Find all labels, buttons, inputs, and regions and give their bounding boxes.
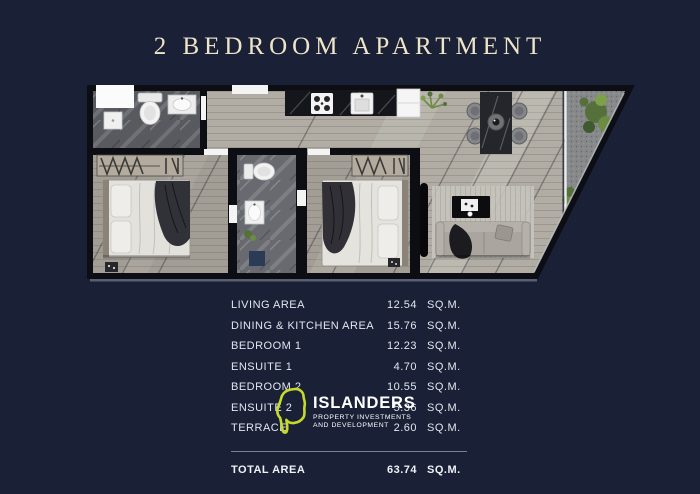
total-unit: SQ.M.: [427, 464, 467, 476]
toilet-icon: [244, 163, 275, 180]
sink-icon: [245, 201, 264, 224]
terrace: [562, 88, 630, 216]
table-row: LIVING AREA 12.54 SQ.M.: [231, 295, 467, 316]
bedroom-1-door: [204, 149, 228, 155]
total-value: 63.74: [377, 464, 417, 476]
toilet-icon: [138, 93, 162, 125]
page: 2 BEDROOM APARTMENT: [0, 0, 700, 494]
kitchen-counter: [285, 89, 420, 117]
dining-table: [480, 92, 512, 154]
area-label: ENSUITE 1: [231, 361, 377, 373]
bedside-box: [105, 262, 118, 272]
area-value: 15.76: [377, 320, 417, 332]
area-value: 12.54: [377, 299, 417, 311]
logo-text: ISLANDERS PROPERTY INVESTMENTS AND DEVEL…: [313, 386, 416, 429]
bedroom-2-door: [308, 149, 330, 155]
area-unit: SQ.M.: [427, 340, 467, 352]
area-label: DINING & KITCHEN AREA: [231, 320, 377, 332]
doors: [96, 85, 330, 223]
tv: [420, 183, 428, 257]
bedroom-2-floor: [305, 152, 412, 274]
dining-set: [421, 92, 528, 155]
sink-icon: [168, 95, 196, 114]
wardrobe-1: [97, 155, 183, 176]
logo-name: ISLANDERS: [313, 395, 416, 412]
total-row: TOTAL AREA 63.74 SQ.M.: [231, 460, 467, 480]
ensuite-1-fixtures: [104, 93, 196, 129]
hall-door: [232, 85, 268, 94]
stove-icon: [311, 93, 333, 114]
ensuite-1-door: [201, 96, 206, 120]
table-divider: [231, 451, 467, 452]
plant-icon: [421, 92, 448, 109]
total-label: TOTAL AREA: [231, 464, 377, 476]
wardrobe-2: [352, 155, 408, 176]
page-title: 2 BEDROOM APARTMENT: [0, 33, 700, 61]
area-unit: SQ.M.: [427, 299, 467, 311]
bedroom-1-bed: [103, 180, 190, 272]
table-row: DINING & KITCHEN AREA 15.76 SQ.M.: [231, 316, 467, 337]
bedroom-1-floor: [92, 152, 232, 274]
closet-door: [229, 205, 237, 223]
logo-tagline: PROPERTY INVESTMENTS AND DEVELOPMENT: [313, 414, 416, 429]
area-unit: SQ.M.: [427, 320, 467, 332]
coffee-table: [452, 196, 490, 218]
area-unit: SQ.M.: [427, 361, 467, 373]
throw-blanket: [449, 224, 472, 259]
fridge: [397, 89, 420, 117]
ensuite-2-floor: [237, 152, 299, 274]
area-unit: SQ.M.: [427, 381, 467, 393]
walls: [90, 88, 630, 282]
floor-base: [90, 88, 630, 276]
table-row: ENSUITE 1 4.70 SQ.M.: [231, 357, 467, 378]
rug: [432, 186, 534, 258]
sofa-pillow: [495, 224, 514, 241]
area-unit: SQ.M.: [427, 422, 467, 434]
table-row: BEDROOM 1 12.23 SQ.M.: [231, 336, 467, 357]
shower-tray: [104, 112, 122, 129]
area-value: 4.70: [377, 361, 417, 373]
bedroom-2-bed: [322, 180, 408, 267]
bath-mat: [249, 251, 265, 266]
island-outline-icon: [270, 386, 310, 436]
light-streaks: [85, 88, 592, 276]
terrace-plant-icon: [562, 94, 614, 204]
area-value: 12.23: [377, 340, 417, 352]
area-label: BEDROOM 1: [231, 340, 377, 352]
ensuite-2-fixtures: [244, 163, 275, 266]
dining-chair: [467, 103, 527, 144]
entry-door: [96, 85, 134, 108]
ensuite-2-door: [297, 190, 306, 206]
sofa: [436, 222, 530, 259]
glass-wall: [563, 88, 567, 216]
bedside-box: [388, 258, 400, 267]
plant-icon: [244, 230, 256, 241]
area-unit: SQ.M.: [427, 402, 467, 414]
kitchen-sink-icon: [351, 93, 373, 114]
islanders-logo: ISLANDERS PROPERTY INVESTMENTS AND DEVEL…: [270, 386, 416, 436]
ensuite-1-floor: [92, 90, 204, 150]
area-label: LIVING AREA: [231, 299, 377, 311]
